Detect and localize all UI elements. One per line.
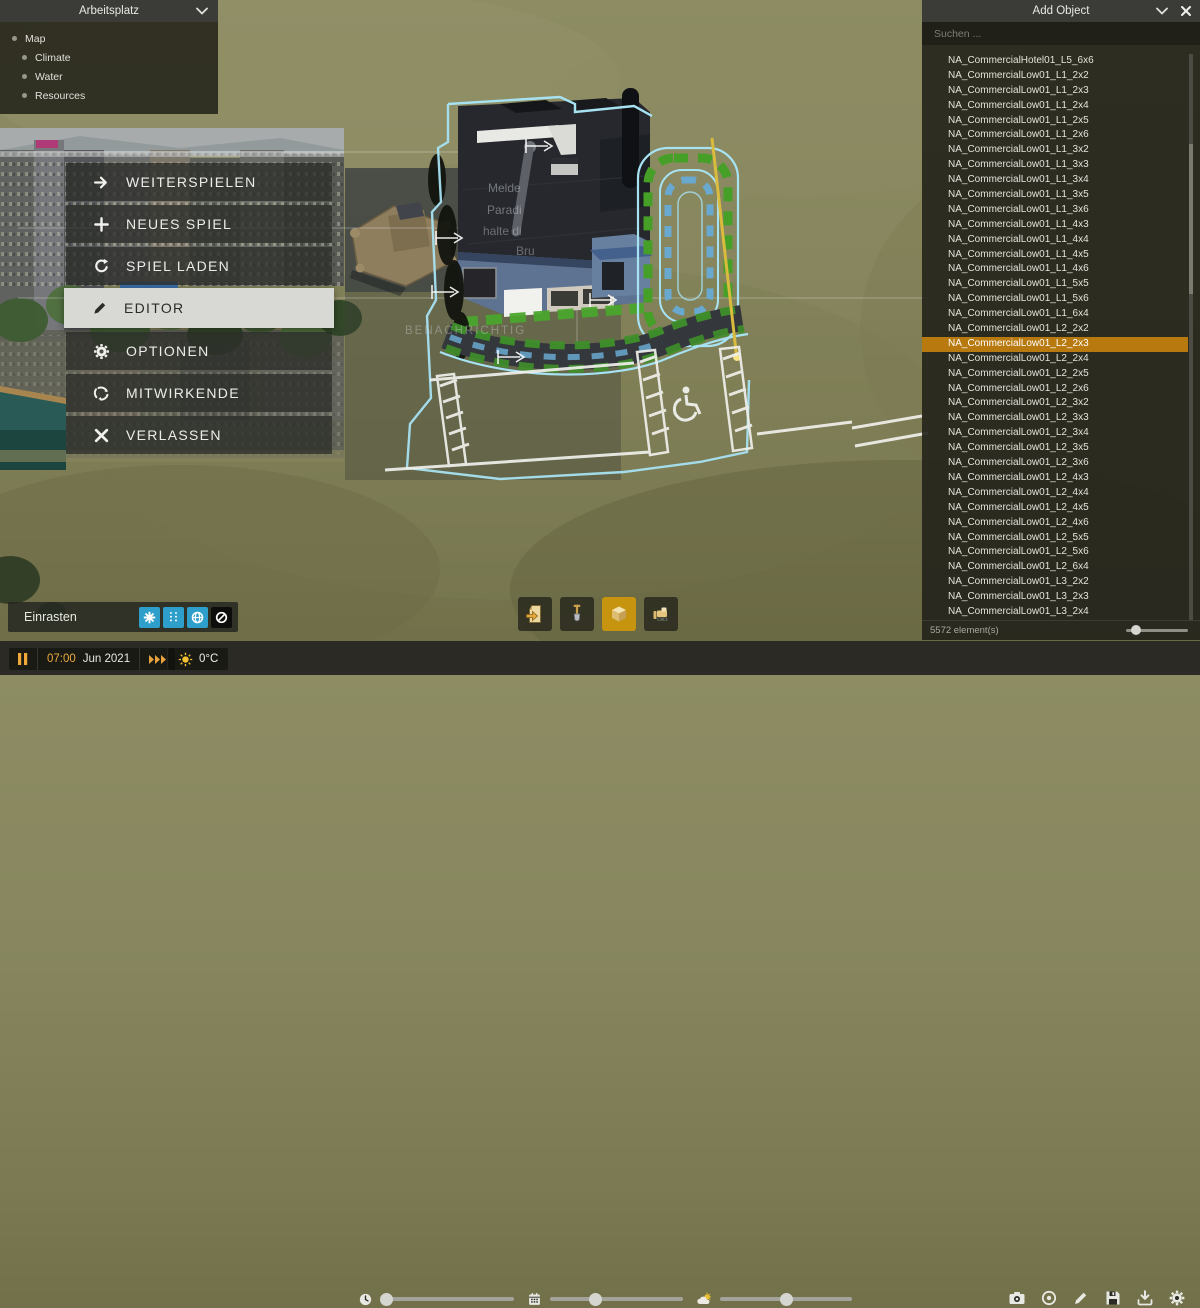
object-list-item[interactable]: NA_CommercialLow01_L1_2x6 xyxy=(922,128,1188,143)
menu-item-label: SPIEL LADEN xyxy=(126,258,230,274)
clock-icon xyxy=(358,1292,373,1307)
workspace-item-label: Water xyxy=(35,71,63,83)
bottom-bar: 07:00 Jun 2021 0°C xyxy=(0,641,1200,675)
workspace-item-climate[interactable]: Climate xyxy=(0,48,218,67)
object-list-item[interactable]: NA_CommercialLow01_L1_4x3 xyxy=(922,218,1188,233)
weather-slider[interactable] xyxy=(696,1290,852,1308)
calendar-icon xyxy=(527,1292,542,1307)
object-list-item[interactable]: NA_CommercialLow01_L1_4x5 xyxy=(922,248,1188,263)
object-list-item[interactable]: NA_CommercialLow01_L2_2x6 xyxy=(922,382,1188,397)
object-list-item[interactable]: NA_CommercialLow01_L2_3x6 xyxy=(922,456,1188,471)
record-icon xyxy=(1040,1289,1058,1307)
element-count: 5572 element(s) xyxy=(930,625,1126,636)
workspace-item-resources[interactable]: Resources xyxy=(0,86,218,105)
sun-icon xyxy=(178,652,193,667)
pause-icon xyxy=(18,653,28,665)
object-list-item[interactable]: NA_CommercialLow01_L2_2x4 xyxy=(922,352,1188,367)
slider-knob[interactable] xyxy=(380,1293,393,1306)
slider-knob[interactable] xyxy=(780,1293,793,1306)
object-list-item[interactable]: NA_CommercialLow01_L1_4x6 xyxy=(922,262,1188,277)
slider-knob[interactable] xyxy=(1131,625,1141,635)
camera-icon xyxy=(1008,1289,1026,1307)
menu-item-label: VERLASSEN xyxy=(126,427,222,443)
workspace-item-label: Map xyxy=(25,33,45,45)
search-input[interactable] xyxy=(932,27,1166,41)
object-list-item[interactable]: NA_CommercialLow01_L1_5x5 xyxy=(922,277,1188,292)
workspace-items: MapClimateWaterResources xyxy=(0,22,218,114)
object-list-item[interactable]: NA_CommercialLow01_L2_5x5 xyxy=(922,531,1188,546)
object-list-item[interactable]: NA_CommercialLow01_L3_2x4 xyxy=(922,605,1188,620)
object-list-item[interactable]: NA_CommercialLow01_L1_5x6 xyxy=(922,292,1188,307)
slider-knob[interactable] xyxy=(589,1293,602,1306)
object-list-item[interactable]: NA_CommercialHotel01_L5_6x6 xyxy=(922,54,1188,69)
workspace-item-map[interactable]: Map xyxy=(0,29,218,48)
add-object-panel-title: Add Object xyxy=(1033,5,1090,17)
pencil-icon xyxy=(1072,1289,1090,1307)
object-list-item[interactable]: NA_CommercialLow01_L2_4x3 xyxy=(922,471,1188,486)
menu-item-weiterspielen[interactable]: WEITERSPIELEN xyxy=(66,163,332,201)
record-button[interactable] xyxy=(1040,1289,1058,1307)
menu-item-label: MITWIRKENDE xyxy=(126,385,240,401)
object-list-item[interactable]: NA_CommercialLow01_L2_5x6 xyxy=(922,545,1188,560)
object-list-item[interactable]: NA_CommercialLow01_L1_2x5 xyxy=(922,114,1188,129)
object-list-item[interactable]: NA_CommercialLow01_L1_3x3 xyxy=(922,158,1188,173)
guideline-snap-button[interactable] xyxy=(163,607,184,628)
slider-track[interactable] xyxy=(381,1297,514,1301)
menu-item-neues-spiel[interactable]: NEUES SPIEL xyxy=(66,205,332,243)
workspace-item-water[interactable]: Water xyxy=(0,67,218,86)
object-list-item[interactable]: NA_CommercialLow01_L2_4x4 xyxy=(922,486,1188,501)
bullet-icon xyxy=(22,74,27,79)
download-button[interactable] xyxy=(1136,1289,1154,1307)
shovel-button[interactable] xyxy=(560,597,594,631)
menu-item-optionen[interactable]: OPTIONEN xyxy=(66,332,332,370)
pause-button[interactable] xyxy=(9,648,37,670)
camera-button[interactable] xyxy=(1008,1289,1026,1307)
bottom-right-toolbar xyxy=(1008,1289,1186,1307)
object-list-item[interactable]: NA_CommercialLow01_L1_3x2 xyxy=(922,143,1188,158)
menu-item-verlassen[interactable]: VERLASSEN xyxy=(66,416,332,454)
bullet-icon xyxy=(22,55,27,60)
chevron-down-icon[interactable] xyxy=(196,7,208,15)
workspace-panel-header[interactable]: Arbeitsplatz xyxy=(0,0,218,22)
menu-item-editor[interactable]: EDITOR xyxy=(64,288,334,328)
close-icon[interactable] xyxy=(1181,6,1191,16)
chevron-down-icon[interactable] xyxy=(1156,7,1168,15)
date-slider[interactable] xyxy=(527,1290,683,1308)
list-scale-slider[interactable] xyxy=(1126,629,1188,633)
object-list-item[interactable]: NA_CommercialLow01_L1_2x4 xyxy=(922,99,1188,114)
date-value: Jun 2021 xyxy=(83,653,130,665)
snap-toolbar: Einrasten xyxy=(8,602,238,632)
faint-text-line: halte di xyxy=(483,224,522,238)
paradox-icon xyxy=(92,385,111,402)
faint-text-line: Paradi xyxy=(487,203,522,217)
slider-track[interactable] xyxy=(550,1297,683,1301)
object-list-item[interactable]: NA_CommercialLow01_L2_3x5 xyxy=(922,441,1188,456)
workspace-panel: Arbeitsplatz MapClimateWaterResources xyxy=(0,0,218,114)
weather-icon xyxy=(696,1292,712,1307)
time-of-day-slider[interactable] xyxy=(358,1290,514,1308)
plus-icon xyxy=(92,216,111,233)
date-time-display: 07:00 Jun 2021 xyxy=(37,648,139,670)
add-object-panel-footer: 5572 element(s) xyxy=(922,620,1200,640)
menu-item-label: NEUES SPIEL xyxy=(126,216,232,232)
bullet-icon xyxy=(12,36,17,41)
arrow-right-icon xyxy=(92,174,111,191)
object-list-item[interactable]: NA_CommercialLow01_L2_2x5 xyxy=(922,367,1188,382)
object-list-item[interactable]: NA_CommercialLow01_L2_3x2 xyxy=(922,396,1188,411)
save-icon xyxy=(1104,1289,1122,1307)
fast-forward-icon xyxy=(149,655,166,664)
object-list-item[interactable]: NA_CommercialLow01_L2_4x5 xyxy=(922,501,1188,516)
temperature-value: 0°C xyxy=(199,653,218,665)
object-list-item[interactable]: NA_CommercialLow01_L1_2x3 xyxy=(922,84,1188,99)
object-list-item[interactable]: NA_CommercialLow01_L2_6x4 xyxy=(922,560,1188,575)
bullet-icon xyxy=(22,93,27,98)
notification-fragment-text: BENACHRICHTIG xyxy=(405,325,526,337)
menu-item-label: EDITOR xyxy=(124,300,184,316)
edit-button[interactable] xyxy=(1072,1289,1090,1307)
object-list-item[interactable]: NA_CommercialLow01_L3_2x2 xyxy=(922,575,1188,590)
object-list-item[interactable]: NA_CommercialLow01_L1_3x4 xyxy=(922,173,1188,188)
faint-text-line: Bru xyxy=(516,244,535,258)
object-list-item[interactable]: NA_CommercialLow01_L1_3x5 xyxy=(922,188,1188,203)
menu-item-label: WEITERSPIELEN xyxy=(126,174,256,190)
import-document-button[interactable] xyxy=(518,597,552,631)
object-list-item[interactable]: NA_CommercialLow01_L3_2x3 xyxy=(922,590,1188,605)
object-list-item[interactable]: NA_CommercialLow01_L1_4x4 xyxy=(922,233,1188,248)
object-list-item[interactable]: NA_CommercialLow01_L2_3x3 xyxy=(922,411,1188,426)
workspace-panel-title: Arbeitsplatz xyxy=(79,5,139,17)
add-object-panel-header: Add Object xyxy=(922,0,1200,22)
globe-snap-button[interactable] xyxy=(187,607,208,628)
gear-icon xyxy=(92,343,111,360)
object-list-item[interactable]: NA_CommercialLow01_L2_2x3 xyxy=(922,337,1188,352)
workspace-item-label: Climate xyxy=(35,52,71,64)
time-value: 07:00 xyxy=(47,653,76,665)
slider-track[interactable] xyxy=(720,1297,852,1301)
object-list-item[interactable]: NA_CommercialLow01_L1_6x4 xyxy=(922,307,1188,322)
faint-text-line: Melde xyxy=(488,181,521,195)
star-snap-button[interactable] xyxy=(139,607,160,628)
snap-toolbar-label: Einrasten xyxy=(24,610,136,624)
workspace-item-label: Resources xyxy=(35,90,85,102)
time-controls: 07:00 Jun 2021 xyxy=(8,647,176,671)
add-object-panel: Add Object NA_CommercialHotel01_L5_6x6NA… xyxy=(922,0,1200,640)
gear-icon xyxy=(1168,1289,1186,1307)
menu-item-spiel-laden[interactable]: SPIEL LADEN xyxy=(66,247,332,285)
object-list-item[interactable]: NA_CommercialLow01_L2_3x4 xyxy=(922,426,1188,441)
menu-item-mitwirkende[interactable]: MITWIRKENDE xyxy=(66,374,332,412)
cube-button[interactable] xyxy=(602,597,636,631)
snap-disabled-button[interactable] xyxy=(211,607,232,628)
scrollbar-thumb[interactable] xyxy=(1189,144,1193,294)
temperature-display: 0°C xyxy=(167,647,229,671)
reload-icon xyxy=(92,258,111,275)
editor-toolbar xyxy=(518,597,678,631)
object-list-item[interactable]: NA_CommercialLow01_L2_2x2 xyxy=(922,322,1188,337)
object-list-item[interactable]: NA_CommercialLow01_L2_4x6 xyxy=(922,516,1188,531)
scrollbar[interactable] xyxy=(1189,54,1193,620)
pencil-icon xyxy=(90,300,109,317)
close-icon xyxy=(92,427,111,444)
download-icon xyxy=(1136,1289,1154,1307)
bulldozer-button[interactable] xyxy=(644,597,678,631)
object-list-item[interactable]: NA_CommercialLow01_L1_2x2 xyxy=(922,69,1188,84)
save-button[interactable] xyxy=(1104,1289,1122,1307)
search-bar xyxy=(922,22,1200,46)
object-list-item[interactable]: NA_CommercialLow01_L1_3x6 xyxy=(922,203,1188,218)
settings-button[interactable] xyxy=(1168,1289,1186,1307)
object-list: NA_CommercialHotel01_L5_6x6NA_Commercial… xyxy=(922,54,1188,620)
menu-item-label: OPTIONEN xyxy=(126,343,210,359)
